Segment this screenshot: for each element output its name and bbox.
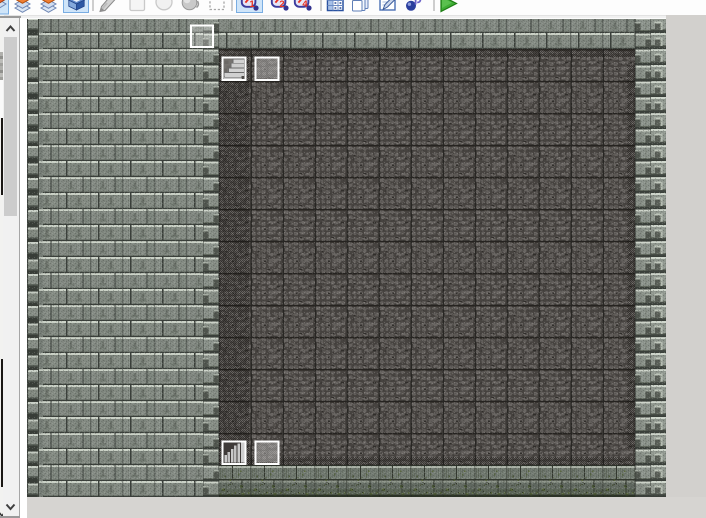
svg-text:1: 1 bbox=[249, 0, 255, 10]
svg-text:4: 4 bbox=[302, 0, 308, 10]
svg-text:2: 2 bbox=[279, 0, 284, 10]
